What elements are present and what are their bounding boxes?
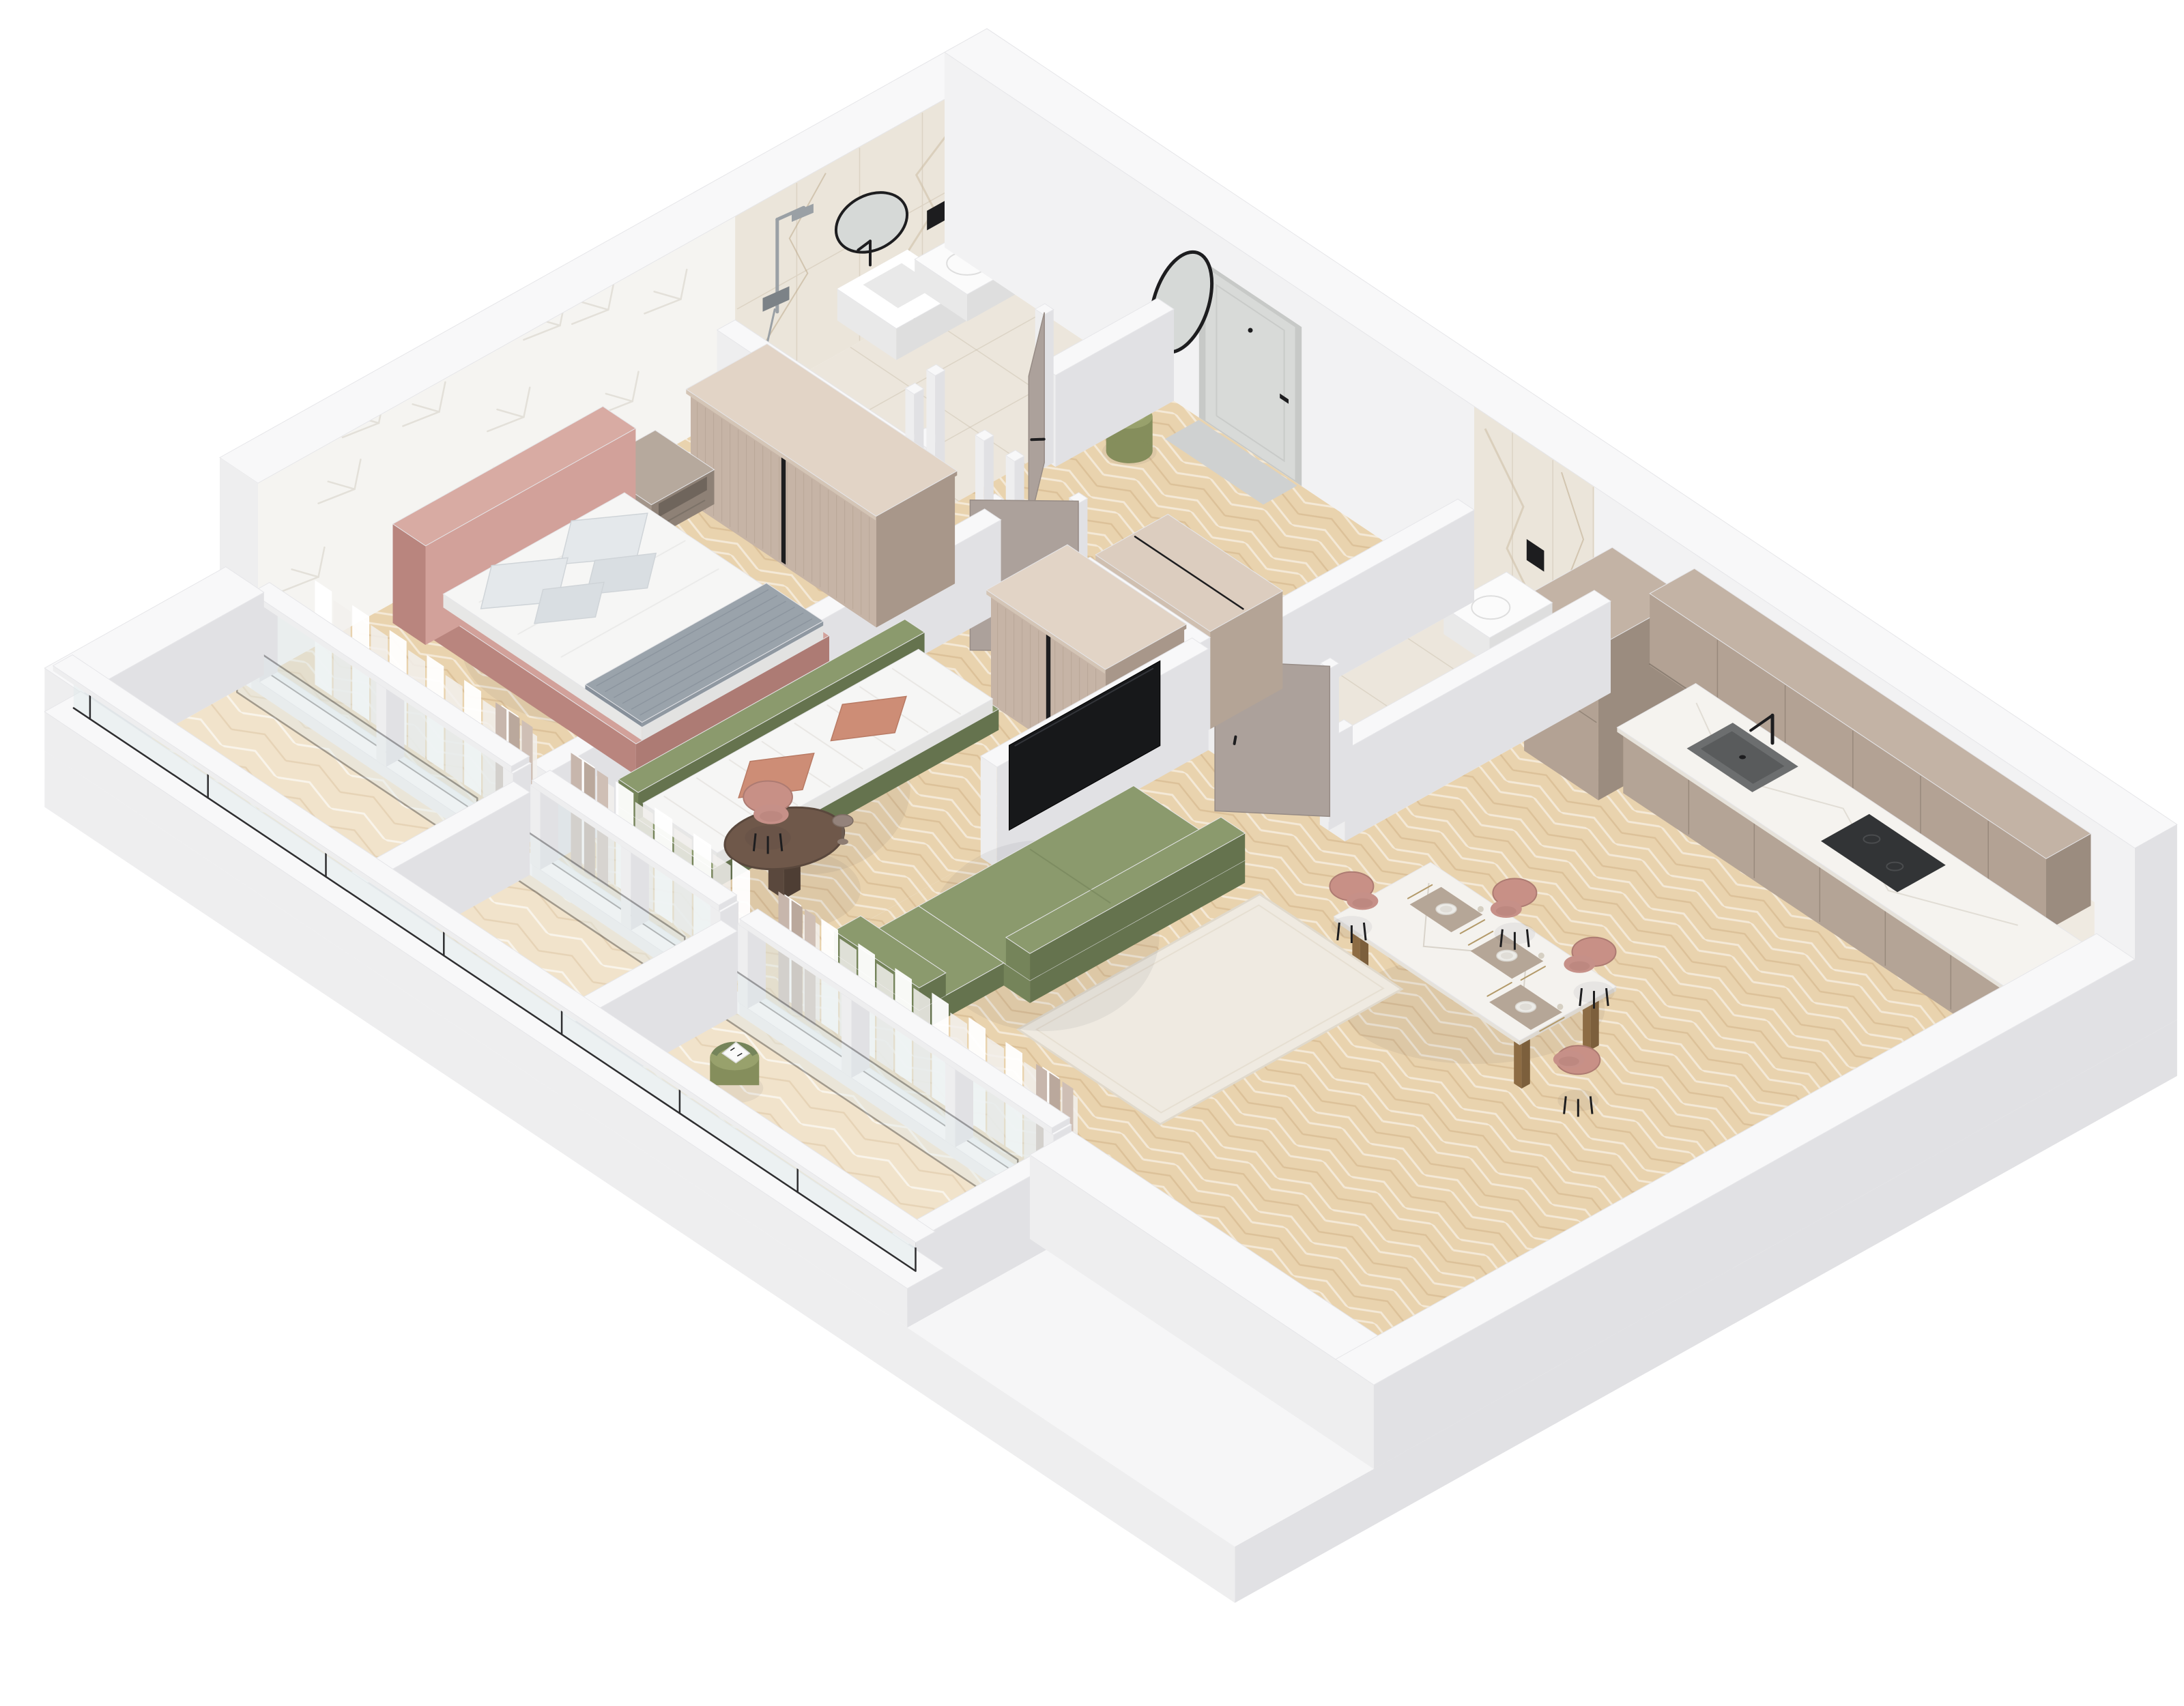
- floor-plan-render: [0, 0, 2184, 1706]
- apartment-isometric-svg: [0, 0, 2184, 1706]
